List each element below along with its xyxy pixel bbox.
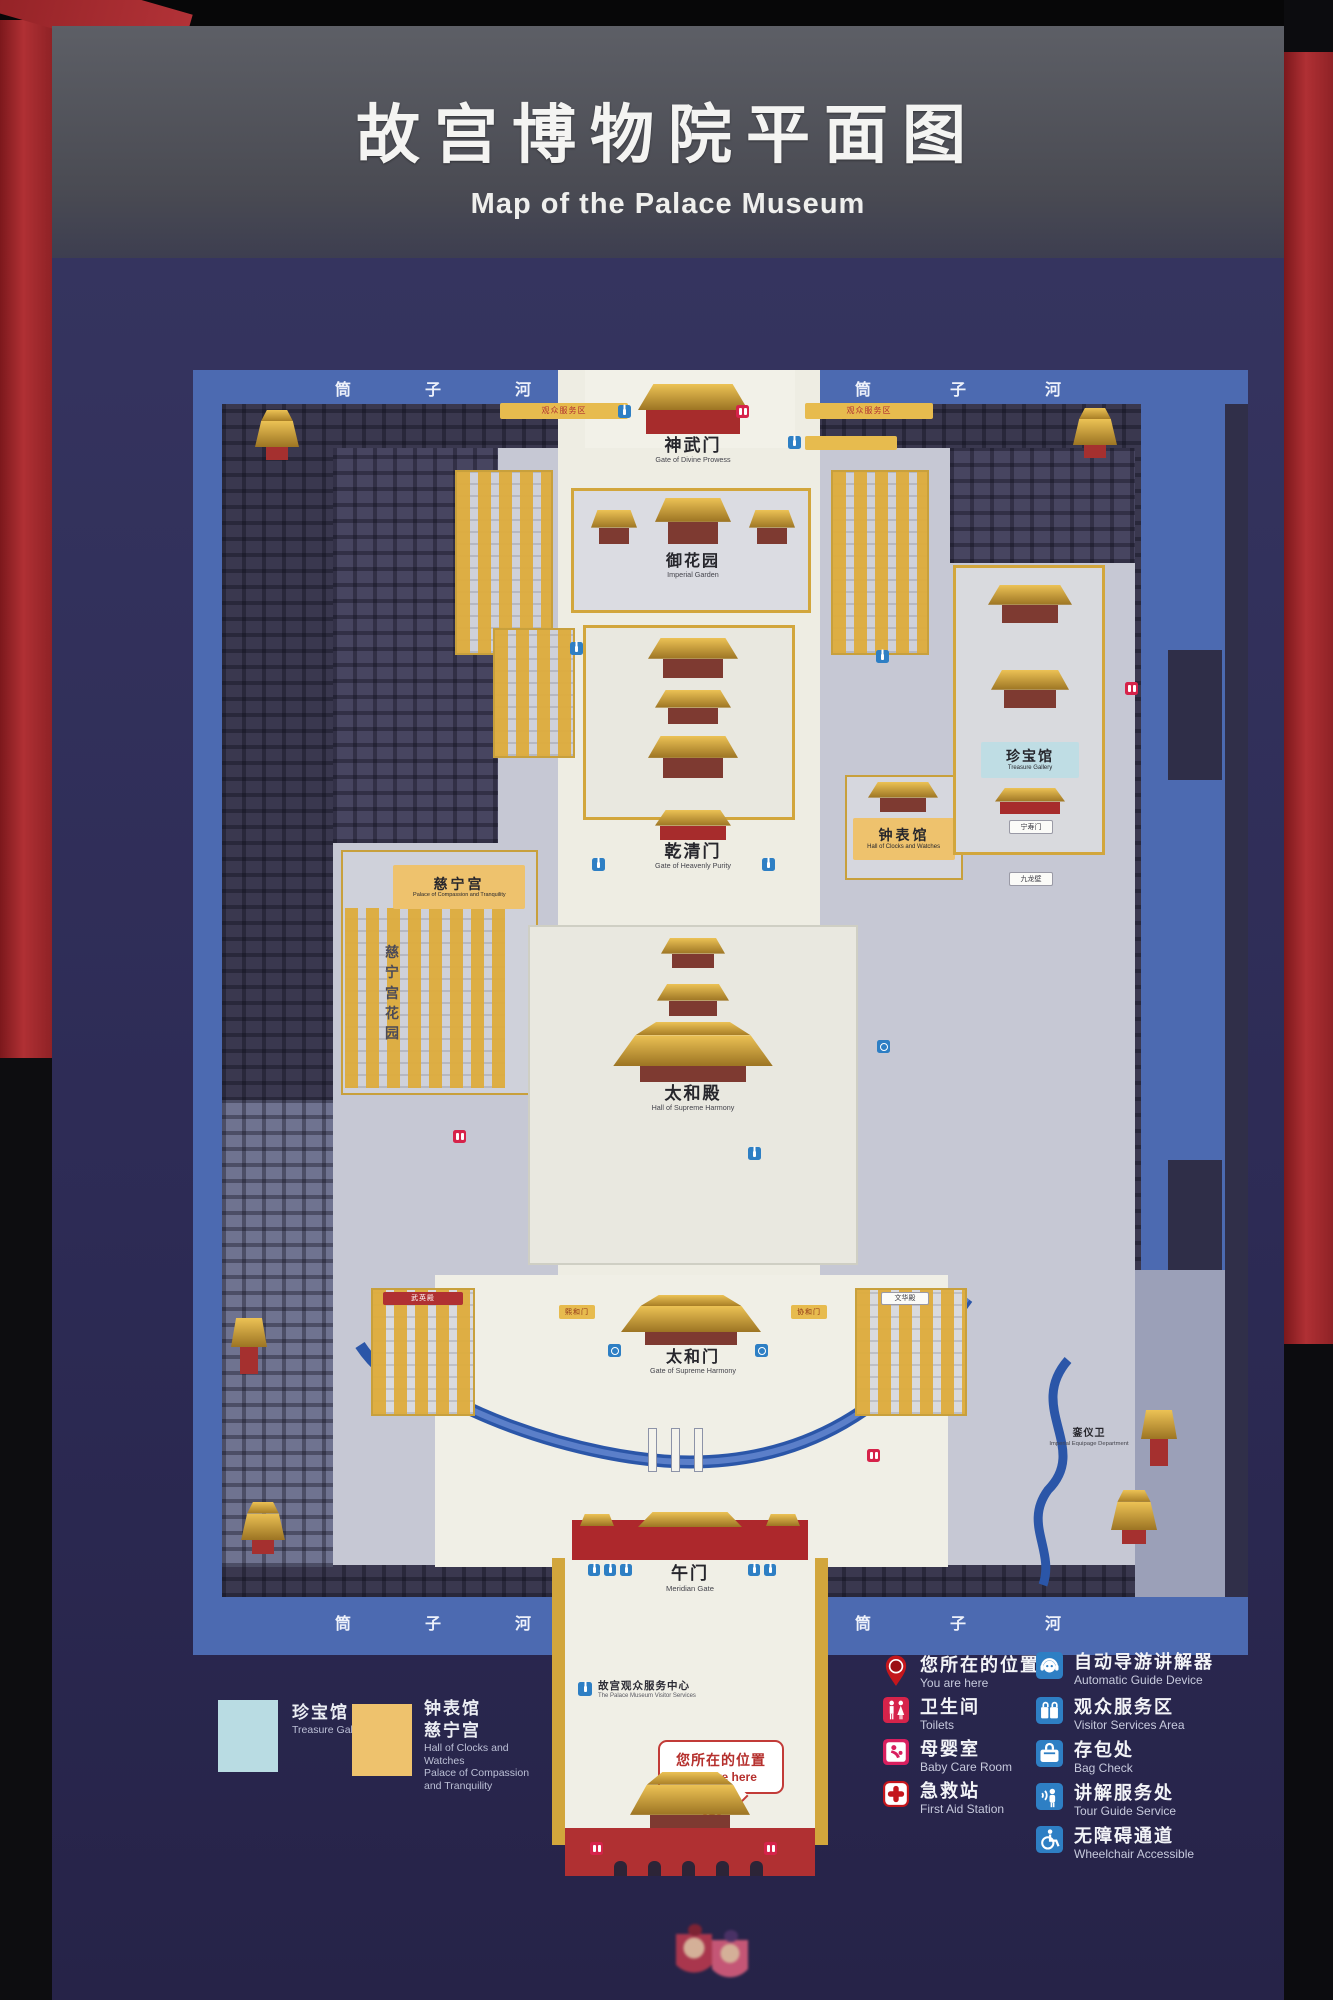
legend-bag-check: 存包处Bag Check bbox=[1036, 1740, 1134, 1775]
clocks-hall-highlight: 钟表馆 Hall of Clocks and Watches bbox=[853, 818, 955, 860]
legend-toilets: 卫生间Toilets bbox=[883, 1697, 980, 1732]
mascot-figure bbox=[668, 1924, 760, 2000]
east-moat-block bbox=[1168, 650, 1222, 780]
moat-label: 子 bbox=[425, 1610, 441, 1634]
palace-map: 筒 子 河 筒 子 河 筒 子 河 筒 子 河 bbox=[193, 370, 1248, 1655]
treasure-gallery-building bbox=[988, 585, 1072, 623]
hall-of-union bbox=[655, 690, 731, 724]
legend-visitor-services: 观众服务区Visitor Services Area bbox=[1036, 1697, 1185, 1732]
moat-label: 筒 bbox=[855, 376, 871, 400]
corner-tower-northwest bbox=[255, 410, 299, 460]
meridian-gate-roof bbox=[638, 1512, 742, 1527]
moat-label: 子 bbox=[425, 376, 441, 400]
background-bottom-right bbox=[1284, 1344, 1333, 2000]
palace-of-earthly-tranquility bbox=[648, 638, 738, 678]
cining-highlight: 慈宁宫 Palace of Compassion and Tranquility bbox=[393, 865, 525, 909]
info-icon bbox=[588, 1564, 600, 1576]
info-icon bbox=[764, 1564, 776, 1576]
moat-label: 河 bbox=[1045, 376, 1061, 400]
meridian-gate-roof bbox=[580, 1514, 614, 1526]
toilets-icon bbox=[453, 1130, 466, 1143]
info-icon bbox=[620, 1564, 632, 1576]
duanmen-gate-building bbox=[630, 1772, 750, 1830]
background-top-right bbox=[1284, 0, 1333, 52]
info-icon bbox=[748, 1147, 761, 1160]
info-icon bbox=[618, 405, 631, 418]
northeast-compounds bbox=[950, 448, 1135, 563]
clocks-cining-swatch bbox=[352, 1704, 412, 1776]
legend-wheelchair: 无障碍通道Wheelchair Accessible bbox=[1036, 1826, 1194, 1861]
first-aid-icon bbox=[883, 1781, 909, 1807]
wheelchair-icon bbox=[608, 1344, 621, 1357]
gate-of-supreme-harmony-building bbox=[621, 1295, 761, 1345]
corner-tower-northeast bbox=[1073, 408, 1117, 458]
baby-care-icon bbox=[883, 1739, 909, 1765]
wuyingdian-label: 武英殿 bbox=[383, 1292, 463, 1305]
audio-guide-icon bbox=[1036, 1652, 1063, 1679]
red-post-left bbox=[0, 20, 52, 1060]
legend-baby-care: 母婴室Baby Care Room bbox=[883, 1739, 1012, 1774]
moat-label: 河 bbox=[515, 376, 531, 400]
bag-check-icon bbox=[1036, 1740, 1063, 1767]
wenhuadian-compound bbox=[855, 1288, 967, 1416]
hall-of-preserving-harmony bbox=[661, 938, 725, 968]
gate-arch bbox=[614, 1861, 627, 1876]
nine-dragon-screen-label: 九龙壁 bbox=[1009, 872, 1053, 886]
sign-title-en: Map of the Palace Museum bbox=[52, 188, 1284, 221]
info-icon bbox=[592, 858, 605, 871]
gate-of-tranquil-longevity-building bbox=[995, 788, 1065, 814]
visitor-services-icon bbox=[1036, 1697, 1063, 1724]
red-post-right bbox=[1284, 50, 1333, 1344]
info-icon bbox=[604, 1564, 616, 1576]
gate-of-divine-prowess-building bbox=[638, 384, 748, 434]
palace-of-heavenly-purity bbox=[648, 736, 738, 778]
moat-label: 筒 bbox=[335, 376, 351, 400]
info-icon bbox=[748, 1564, 760, 1576]
gate-arch bbox=[648, 1861, 661, 1876]
moat-label: 河 bbox=[1045, 1610, 1061, 1634]
gate-of-heavenly-purity-building bbox=[655, 810, 731, 840]
shenwumen-label: 神武门 Gate of Divine Prowess bbox=[618, 436, 768, 465]
gate-arch bbox=[682, 1861, 695, 1876]
wuyingdian-compound bbox=[371, 1288, 475, 1416]
toilets-icon bbox=[736, 405, 749, 418]
hall-of-central-harmony bbox=[657, 984, 729, 1016]
hall-of-imperial-peace bbox=[655, 498, 731, 544]
xiehemen-label: 协和门 bbox=[791, 1305, 827, 1319]
info-icon bbox=[876, 650, 889, 663]
sign-title-zh: 故宫博物院平面图 bbox=[52, 84, 1284, 176]
clocks-hall-building bbox=[868, 782, 938, 812]
visitor-services-strip: 观众服务区 bbox=[805, 403, 933, 419]
wheelchair-icon bbox=[877, 1040, 890, 1053]
west-prosperity-gate bbox=[231, 1318, 267, 1374]
toilets-icon bbox=[1125, 682, 1138, 695]
moat-label: 子 bbox=[950, 376, 966, 400]
east-wall bbox=[814, 1558, 828, 1845]
qianqingmen-label: 乾清门 Gate of Heavenly Purity bbox=[623, 842, 763, 871]
visitor-services-strip: 观众服务区 bbox=[500, 403, 628, 419]
luanyiwei-label: 銮仪卫 Imperial Equipage Department bbox=[1021, 1428, 1157, 1447]
hall-of-supreme-harmony-building bbox=[613, 1022, 773, 1082]
xihemen-label: 熙和门 bbox=[559, 1305, 595, 1319]
you-are-here-pin-icon bbox=[883, 1655, 909, 1687]
corner-tower-southeast bbox=[1111, 1490, 1157, 1544]
imperial-garden-label: 御花园 Imperial Garden bbox=[641, 552, 745, 580]
hall-of-mental-cultivation bbox=[493, 628, 575, 758]
info-icon bbox=[788, 436, 801, 449]
wheelchair-icon bbox=[1036, 1826, 1063, 1853]
treasure-gallery-highlight: 珍宝馆 Treasure Gallery bbox=[981, 742, 1079, 778]
garden-pavilion bbox=[749, 510, 795, 544]
taihemen-label: 太和门 Gate of Supreme Harmony bbox=[623, 1348, 763, 1376]
legend-first-aid: 急救站First Aid Station bbox=[883, 1781, 1004, 1816]
treasure-gallery-swatch bbox=[218, 1700, 278, 1772]
moat-label: 筒 bbox=[855, 1610, 871, 1634]
tour-guide-icon bbox=[1036, 1783, 1063, 1810]
moat-label: 子 bbox=[950, 1610, 966, 1634]
toilets-icon bbox=[883, 1697, 909, 1723]
west-wall bbox=[552, 1558, 566, 1845]
moat-label: 筒 bbox=[335, 1610, 351, 1634]
photo-top-bar bbox=[0, 0, 1333, 26]
wenhuadian-label: 文华殿 bbox=[881, 1292, 929, 1305]
info-icon bbox=[762, 858, 775, 871]
corner-tower-southwest bbox=[241, 1502, 285, 1554]
visitor-center-icon bbox=[578, 1682, 592, 1696]
toilets-icon bbox=[764, 1842, 777, 1855]
toilets-icon bbox=[867, 1449, 880, 1462]
taihedian-label: 太和殿 Hall of Supreme Harmony bbox=[623, 1084, 763, 1113]
hall-of-imperial-supremacy bbox=[991, 670, 1069, 708]
eastern-palaces bbox=[831, 470, 929, 655]
gate-arch bbox=[750, 1861, 763, 1876]
gate-arch bbox=[716, 1861, 729, 1876]
river-bridge bbox=[694, 1428, 703, 1472]
info-icon bbox=[570, 642, 583, 655]
wumen-label: 午门 Meridian Gate bbox=[640, 1564, 740, 1594]
ningshoumen-label: 宁寿门 bbox=[1009, 820, 1053, 834]
east-edge bbox=[1225, 404, 1248, 1597]
cining-garden-label: 慈宁宫花园 bbox=[385, 942, 403, 1043]
wheelchair-icon bbox=[755, 1344, 768, 1357]
photo-frame: 故宫博物院平面图 Map of the Palace Museum 筒 子 河 … bbox=[0, 0, 1333, 2000]
legend-audio-guide: 自动导游讲解器Automatic Guide Device bbox=[1036, 1652, 1214, 1687]
toilets-icon bbox=[590, 1842, 603, 1855]
garden-pavilion bbox=[591, 510, 637, 544]
meridian-gate-roof bbox=[766, 1514, 800, 1526]
background-left bbox=[0, 1058, 52, 2000]
river-bridge bbox=[648, 1428, 657, 1472]
visitor-center-label: 故宫观众服务中心 The Palace Museum Visitor Servi… bbox=[598, 1678, 748, 1699]
south-corridor: 午门 Meridian Gate 故宫观众服务中心 The Palace Mus… bbox=[552, 1520, 828, 1880]
river-bridge bbox=[671, 1428, 680, 1472]
service-strip bbox=[805, 436, 897, 450]
legend-you-are-here: 您所在的位置You are here bbox=[883, 1655, 1040, 1690]
legend-tour-guide: 讲解服务处Tour Guide Service bbox=[1036, 1783, 1176, 1818]
moat-label: 河 bbox=[515, 1610, 531, 1634]
cining-garden-blocks bbox=[345, 908, 505, 1088]
